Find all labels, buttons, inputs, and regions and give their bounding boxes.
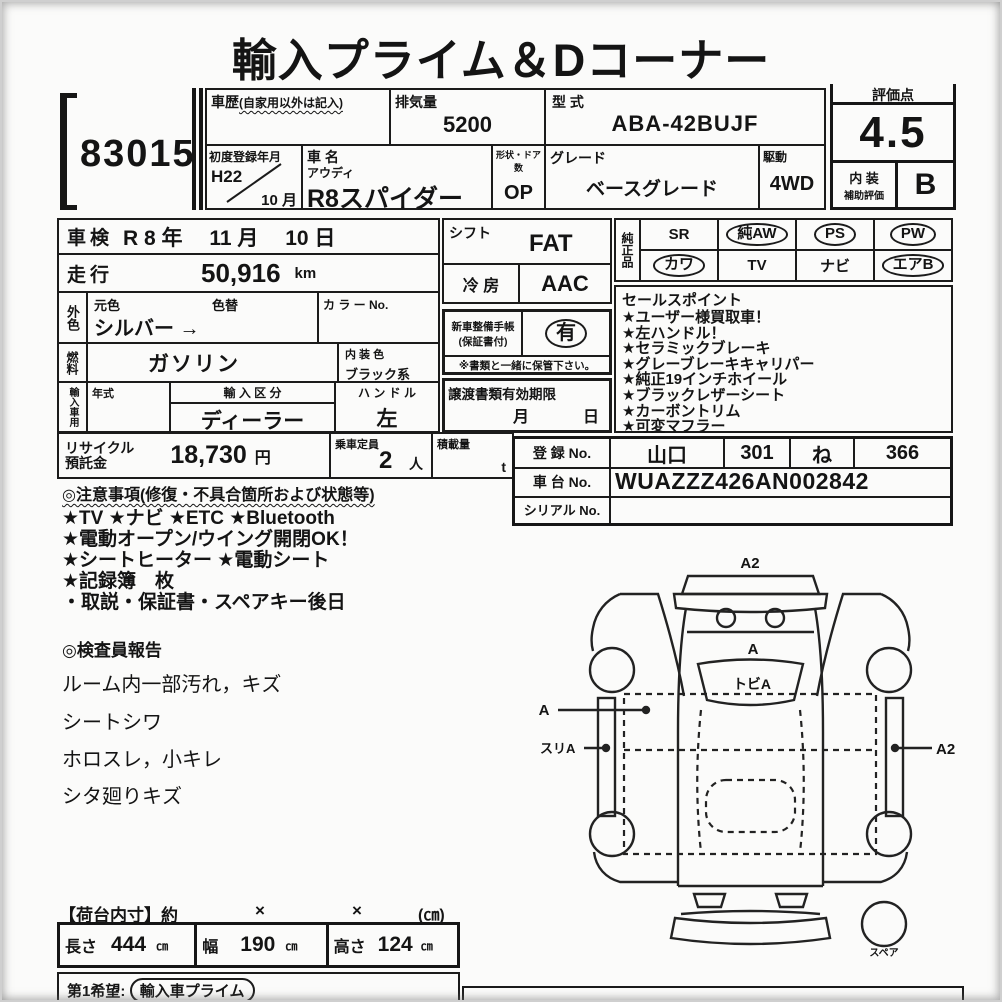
diagram-front-label: A2: [740, 555, 759, 572]
int-color-label: 内 装 色: [339, 344, 438, 364]
sales-point: ★カーボントリム: [622, 404, 945, 420]
displacement-value: 5200: [391, 112, 544, 138]
oem-item-navi: ナビ: [795, 249, 875, 282]
oem-item-tv: TV: [717, 249, 797, 282]
cargo-width-unit: ㎝: [285, 937, 297, 954]
import-label: 輸入車用: [57, 381, 88, 433]
ac-value: AAC: [520, 265, 610, 302]
oem-value: SR: [669, 226, 690, 243]
cargo-width-label: 幅: [202, 933, 218, 957]
footer-right-box: [462, 986, 964, 1002]
load-unit: t: [501, 459, 506, 475]
diagram-spare-label: スペア: [869, 947, 898, 959]
shift-cell: シフト FAT: [442, 218, 612, 265]
ac-cell: 冷 房 AAC: [442, 263, 612, 304]
oem-value: エアB: [882, 254, 945, 277]
lot-bracket: [60, 93, 77, 210]
int-color-cell: 内 装 色 ブラック系: [337, 342, 440, 383]
service-book-box: 新車整備手帳 (保証書付) 有 ※書類と一緒に保管下さい。: [442, 309, 612, 375]
model-code-value: ABA-42BUJF: [546, 111, 824, 137]
page-title: 輸入プライム＆Dコーナー: [120, 24, 882, 89]
year-label: 年式: [88, 383, 169, 403]
interior-label-1: 内 装: [849, 168, 879, 187]
grade-cell: グレード ベースグレード: [544, 144, 760, 210]
rating-score: 4.5: [830, 102, 956, 163]
serial-no-label: シリアル No.: [515, 496, 611, 523]
car-damage-diagram: A2 A トビA A スリA A2 スペア: [528, 552, 970, 966]
car-name-value: R8スパイダー: [303, 179, 491, 215]
shaken-label: 車検: [59, 223, 123, 250]
oem-item-aw: 純AW: [717, 218, 797, 251]
transfer-box: 譲渡書類有効期限 月 日: [442, 378, 612, 433]
handle-value: 左: [336, 403, 438, 433]
registration-block: 登 録 No. 山口 301 ね 366 車 台 No. WUAZZZ426AN…: [512, 436, 953, 526]
import-class-label: 輸 入 区 分: [171, 383, 334, 404]
diagram-windshield-label: トビA: [733, 676, 771, 692]
sales-point: ★ユーザー様買取車！: [622, 310, 945, 326]
capacity-value: 2: [379, 447, 392, 475]
transfer-label: 譲渡書類有効期限: [445, 381, 609, 405]
import-class-cell: 輸 入 区 分 ディーラー: [169, 381, 336, 433]
wish-box: 第1希望: 輸入車プライム: [57, 972, 460, 1002]
wish-label: 第1希望:: [67, 983, 125, 1000]
car-name-cell: 車 名 アウディ R8スパイダー: [301, 144, 493, 210]
mileage-unit: km: [295, 265, 317, 282]
inspection-title: ◎検査員報告: [62, 636, 162, 661]
rating-box: 評価点 4.5 内 装 補助評価 B: [830, 84, 956, 210]
capacity-cell: 乗車定員 2 人: [329, 432, 433, 479]
cargo-length-label: 長さ: [65, 933, 97, 957]
grade-label: グレード: [546, 146, 758, 170]
chassis-no-label: 車 台 No.: [515, 467, 611, 496]
inspection-line: シートシワ: [62, 706, 162, 735]
first-reg-cell: 初度登録年月 H22 10 月: [205, 144, 303, 210]
reg-no-label: 登 録 No.: [515, 439, 611, 467]
recycle-label-1: リサイクル: [65, 441, 134, 456]
oem-label: 純正品: [614, 218, 641, 282]
reg-kana: ね: [791, 439, 855, 467]
notes-title: ◎注意事項(修復・不具合箇所および状態等): [62, 481, 375, 505]
drive-value: 4WD: [760, 173, 824, 196]
first-reg-slash: [207, 146, 301, 208]
displacement-cell: 排気量 5200: [389, 88, 546, 146]
history-note: (自家用以外は記入): [239, 96, 343, 110]
diagram-right-label: A2: [936, 741, 955, 758]
fuel-cell: ガソリン: [86, 342, 339, 383]
load-cell: 積載量 t: [431, 432, 514, 479]
handle-cell: ハ ン ド ル 左: [334, 381, 440, 433]
interior-grade: B: [898, 163, 953, 207]
interior-rating: 内 装 補助評価 B: [830, 160, 956, 210]
notes-line: ・取説・保証書・スペアキー後日: [62, 587, 346, 614]
ext-color-cell: 元色 色替 シルバー →: [86, 291, 319, 344]
reg-class: 301: [725, 439, 791, 467]
cargo-length-value: 444: [111, 933, 146, 957]
inspection-line: ルーム内一部汚れ，キズ: [62, 668, 281, 697]
recycle-cell: リサイクル 預託金 18,730 円: [57, 432, 331, 479]
oem-value: PS: [814, 223, 856, 246]
color-value: シルバー →: [88, 312, 317, 341]
oem-item-airbag: エアB: [873, 249, 953, 282]
cargo-height-label: 高さ: [334, 933, 366, 957]
grade-value: ベースグレード: [546, 174, 758, 201]
sales-point: ★ブラックレザーシート: [622, 388, 945, 404]
recycle-unit: 円: [255, 444, 271, 468]
oem-item-kawa: カワ: [639, 249, 719, 282]
recycle-value: 18,730: [170, 441, 246, 470]
reg-number: 366: [855, 439, 950, 467]
year-cell: 年式: [86, 381, 171, 433]
inspection-line: ホロスレ，小キレ: [62, 743, 222, 772]
interior-label-2: 補助評価: [844, 187, 884, 202]
ext-color-label: 外色: [57, 291, 88, 344]
auction-sheet: 輸入プライム＆Dコーナー 83015 車歴(自家用以外は記入) 排気量 5200…: [0, 0, 1002, 1002]
shift-value: FAT: [529, 230, 573, 258]
inspection-line: シタ廻りキズ: [62, 780, 182, 809]
mileage-row: 走行 50,916 km: [57, 253, 440, 293]
handle-label: ハ ン ド ル: [336, 383, 438, 402]
oem-item-sr: SR: [639, 218, 719, 251]
transfer-day: 日: [583, 403, 599, 427]
oem-item-ps: PS: [795, 218, 875, 251]
cargo-height-unit: ㎝: [421, 937, 433, 954]
oem-value: ナビ: [820, 255, 850, 276]
mileage-label: 走行: [59, 260, 121, 287]
shape-doors-label: 形状・ドア数: [493, 146, 544, 174]
diagram-hood-label: A: [748, 641, 759, 658]
sales-points-title: セールスポイント: [622, 289, 945, 310]
fuel-value: ガソリン: [148, 348, 240, 378]
cargo-height-value: 124: [378, 933, 413, 957]
sales-point: ★純正19インチホイール: [622, 372, 945, 388]
capacity-unit: 人: [409, 454, 423, 474]
cargo-length-unit: ㎝: [156, 937, 168, 954]
ac-label: 冷 房: [444, 265, 520, 302]
service-book-sublabel: (保証書付): [459, 334, 508, 349]
displacement-label: 排気量: [391, 90, 544, 114]
cargo-table: 長さ 444 ㎝ 幅 190 ㎝ 高さ 124 ㎝: [57, 922, 460, 968]
service-book-label: 新車整備手帳: [452, 319, 515, 334]
oem-value: カワ: [653, 254, 705, 277]
history-label: 車歴: [211, 94, 239, 110]
transfer-month: 月: [513, 403, 529, 427]
chassis-no-value: WUAZZZ426AN002842: [611, 467, 950, 496]
shape-doors-value: OP: [493, 182, 544, 205]
shaken-value: R 8 年 11 月 10 日: [123, 222, 335, 252]
oem-item-pw: PW: [873, 218, 953, 251]
lot-number: 83015: [80, 133, 196, 176]
shape-doors-cell: 形状・ドア数 OP: [491, 144, 546, 210]
sales-point: ★可変マフラー: [622, 419, 945, 435]
oem-value: TV: [747, 257, 766, 274]
drive-label: 駆動: [760, 146, 824, 167]
cargo-x2: ×: [352, 901, 362, 921]
color-no-label: カ ラ ー No.: [319, 293, 438, 316]
reg-region: 山口: [611, 439, 725, 467]
diagram-left-label: A: [539, 702, 550, 719]
load-label: 積載量: [433, 434, 512, 454]
service-book-value: 有: [545, 319, 587, 348]
shift-label: シフト: [449, 223, 491, 243]
mileage-value: 50,916: [201, 258, 281, 289]
header-divider: [192, 88, 203, 210]
fuel-label: 燃料: [57, 342, 88, 383]
import-class-value: ディーラー: [171, 405, 334, 435]
oem-value: PW: [890, 223, 936, 246]
diagram-left-sill-label: スリA: [540, 741, 576, 756]
color-no-cell: カ ラ ー No.: [317, 291, 440, 344]
drive-cell: 駆動 4WD: [758, 144, 826, 210]
sales-point: ★左ハンドル！: [622, 326, 945, 342]
history-cell: 車歴(自家用以外は記入): [205, 88, 391, 146]
recolor-label: 色替: [212, 295, 238, 314]
cargo-x1: ×: [255, 901, 265, 921]
sales-point: ★セラミックブレーキ: [622, 341, 945, 357]
oem-value: 純AW: [726, 223, 787, 246]
keep-note: ※書類と一緒に保管下さい。: [445, 355, 609, 373]
model-code-cell: 型 式 ABA-42BUJF: [544, 88, 826, 146]
shaken-row: 車検 R 8 年 11 月 10 日: [57, 218, 440, 255]
cargo-width-value: 190: [240, 933, 275, 957]
wish-value: 輸入車プライム: [130, 978, 255, 1002]
sales-points-box: セールスポイント ★ユーザー様買取車！ ★左ハンドル！ ★セラミックブレーキ ★…: [614, 285, 953, 433]
recycle-label-2: 預託金: [65, 456, 134, 471]
